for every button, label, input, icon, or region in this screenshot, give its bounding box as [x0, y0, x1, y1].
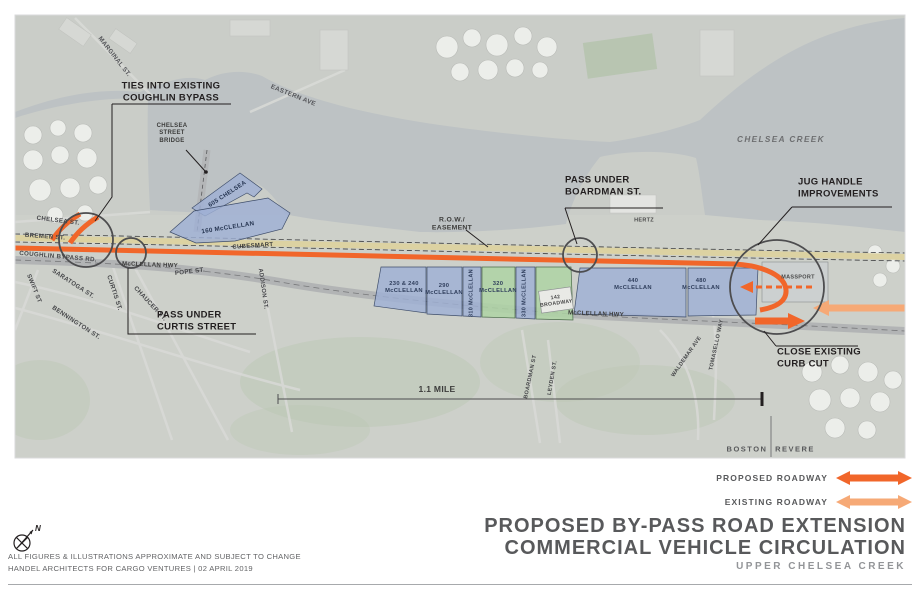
title-block: PROPOSED BY-PASS ROAD EXTENSION COMMERCI… — [484, 515, 906, 572]
legend-item-existing: EXISTING ROADWAY — [698, 494, 912, 510]
north-letter: N — [35, 524, 41, 533]
bridge-leader-dot — [204, 170, 208, 174]
sheet-title-line1: PROPOSED BY-PASS ROAD EXTENSION — [484, 515, 906, 537]
bottom-rule — [8, 584, 912, 585]
legend-label-proposed: PROPOSED ROADWAY — [698, 473, 828, 483]
disclaimer-line1: ALL FIGURES & ILLUSTRATIONS APPROXIMATE … — [8, 551, 301, 563]
legend-item-proposed: PROPOSED ROADWAY — [698, 470, 912, 486]
legend-label-existing: EXISTING ROADWAY — [698, 497, 828, 507]
disclaimer-line2: HANDEL ARCHITECTS FOR CARGO VENTURES | 0… — [8, 563, 301, 575]
disclaimer: ALL FIGURES & ILLUSTRATIONS APPROXIMATE … — [8, 551, 301, 575]
existing-roadway-arrow-icon — [836, 494, 912, 510]
proposed-roadway-arrow-icon — [836, 470, 912, 486]
plan-sheet: TIES INTO EXISTING COUGHLIN BYPASSMARGIN… — [0, 0, 920, 592]
map-graphics — [0, 15, 905, 458]
parcel-142-broadway — [539, 287, 574, 313]
sheet-subtitle: UPPER CHELSEA CREEK — [484, 561, 906, 572]
sheet-title-line2: COMMERCIAL VEHICLE CIRCULATION — [484, 537, 906, 559]
parcel-massport — [762, 262, 828, 302]
